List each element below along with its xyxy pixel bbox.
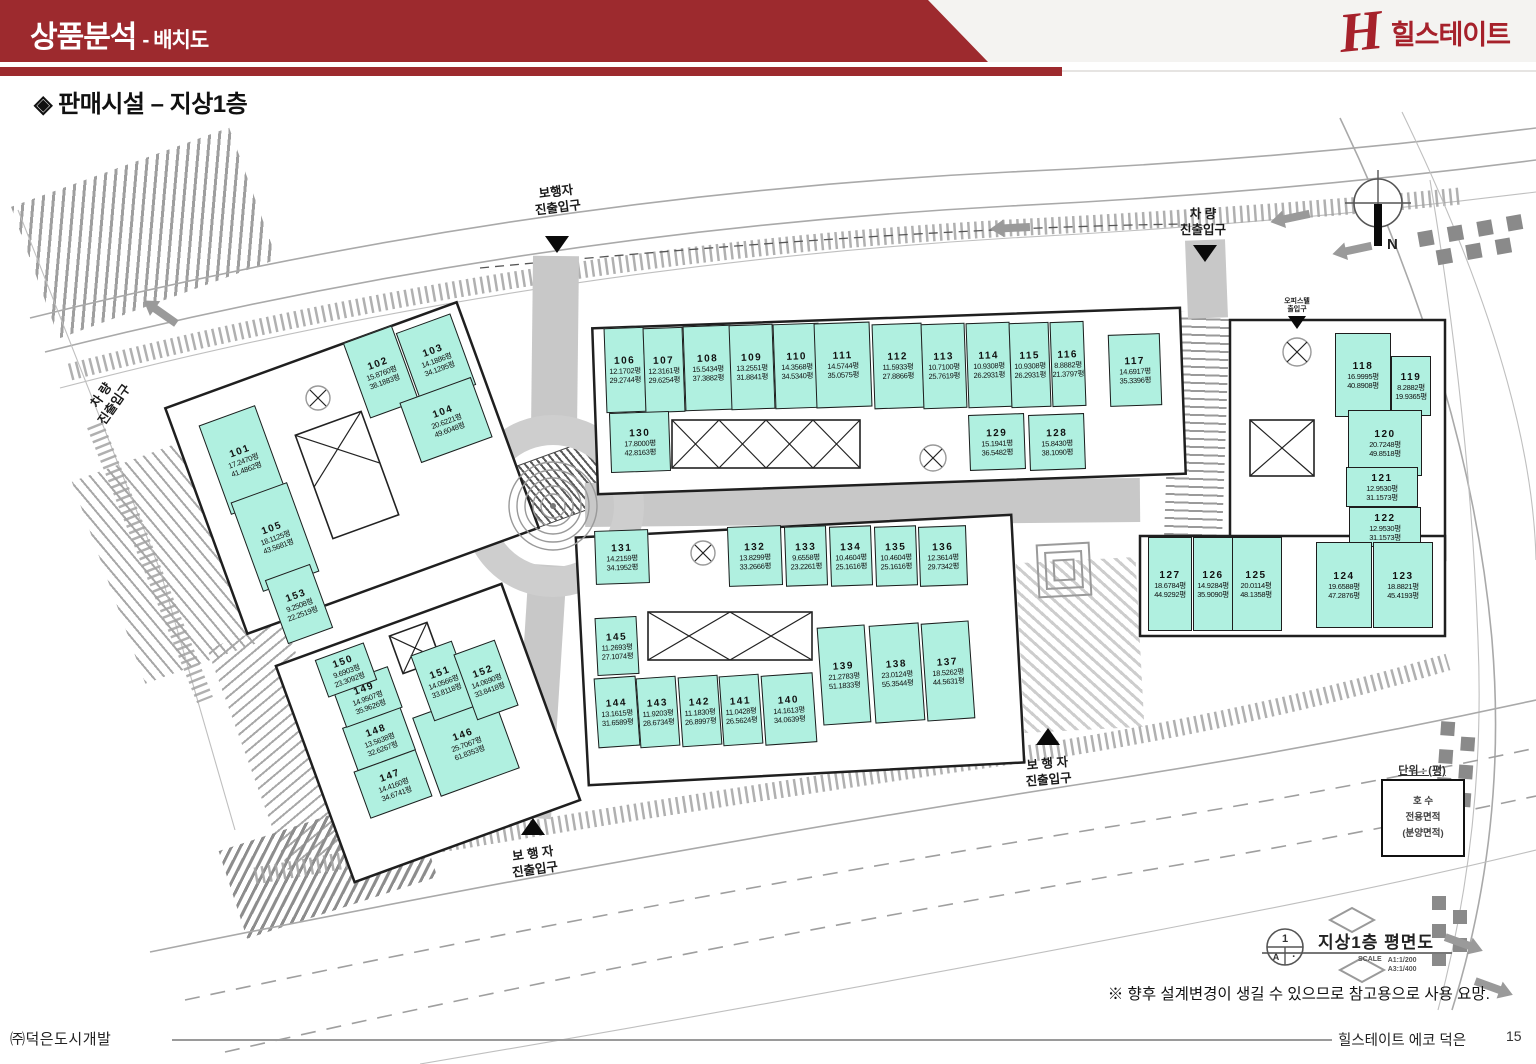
legend-box: 호 수 전용면적 (분양면적) — [1381, 779, 1465, 857]
unit-layer: 101 17.2470평 41.4862평 102 15.8760평 38.18… — [0, 0, 1536, 1064]
unit-room: 133 9.6558평 23.2261평 — [784, 525, 828, 586]
unit-supply-area: 49.8518평 — [1369, 449, 1401, 458]
unit-number: 135 — [885, 541, 907, 553]
unit-room: 124 19.6588평 47.2876평 — [1316, 542, 1372, 628]
unit-number: 111 — [832, 350, 852, 362]
slide: 상품분석- 배치도 H 힐스테이트 ◈ 판매시설 – 지상1층 — [0, 0, 1536, 1064]
unit-number: 130 — [629, 427, 651, 439]
unit-number: 115 — [1019, 350, 1040, 362]
unit-number: 120 — [1374, 429, 1395, 440]
unit-room: 122 12.9530평 31.1573평 — [1349, 507, 1421, 547]
unit-exclusive-area: 20.7248평 — [1369, 440, 1401, 449]
pedestrian-entrance-label-top: 보행자 진출입구 — [532, 181, 582, 219]
unit-room: 118 16.9995평 40.8908평 — [1335, 333, 1391, 417]
unit-supply-area: 37.3882평 — [692, 373, 724, 383]
unit-number: 127 — [1159, 570, 1180, 581]
unit-number: 116 — [1057, 349, 1078, 361]
unit-number: 114 — [978, 350, 999, 362]
unit-supply-area: 45.4193평 — [1387, 591, 1419, 600]
unit-room: 113 10.7100평 25.7619평 — [921, 323, 968, 409]
unit-supply-area: 31.6589평 — [602, 716, 634, 727]
unit-room: 125 20.0114평 48.1358평 — [1230, 537, 1282, 631]
unit-supply-area: 29.2744평 — [609, 375, 641, 385]
unit-supply-area: 42.8163평 — [624, 447, 656, 457]
legend-line: 전용면적 — [1406, 810, 1441, 826]
page-number: 15 — [1506, 1028, 1522, 1044]
unit-number: 118 — [1353, 361, 1374, 372]
plan-scale: SCALE A1:1/200 A3:1/400 — [1358, 956, 1417, 974]
pedestrian-entrance-label-mid: 보 행 자 진출입구 — [1024, 754, 1073, 790]
unit-supply-area: 25.1616평 — [835, 561, 867, 571]
unit-exclusive-area: 16.9995평 — [1347, 372, 1379, 381]
unit-room: 116 8.8882평 21.3797평 — [1050, 321, 1087, 407]
unit-number: 124 — [1333, 571, 1354, 582]
unit-room: 109 13.2551평 31.8841평 — [729, 324, 776, 410]
scale-a3: A3:1/400 — [1388, 965, 1417, 974]
unit-room: 142 11.1830평 26.8997평 — [678, 675, 723, 748]
unit-supply-area: 47.2876평 — [1328, 591, 1360, 600]
disclaimer-note: ※ 향후 설계변경이 생길 수 있으므로 참고용으로 사용 요망. — [1108, 982, 1490, 1004]
pedestrian-entrance-label-bottom: 보 행 자 진출입구 — [509, 843, 559, 882]
unit-room: 138 23.0124평 55.3544평 — [869, 622, 926, 723]
unit-supply-area: 26.2931평 — [1014, 370, 1046, 380]
svg-text:A: A — [1273, 952, 1280, 962]
unit-exclusive-area: 12.9530평 — [1369, 524, 1401, 533]
unit-room: 126 14.9284평 35.9090평 — [1193, 537, 1233, 631]
unit-supply-area: 31.1573평 — [1366, 493, 1398, 502]
unit-number: 113 — [933, 351, 954, 363]
unit-exclusive-area: 20.0114평 — [1240, 581, 1271, 590]
unit-number: 119 — [1401, 372, 1422, 383]
unit-room: 106 12.1702평 29.2744평 — [604, 327, 647, 413]
unit-number: 123 — [1392, 571, 1413, 582]
unit-number: 121 — [1371, 473, 1392, 484]
unit-supply-area: 25.1616평 — [880, 561, 912, 571]
unit-room: 129 15.1941평 36.5482평 — [968, 413, 1026, 471]
footer-rule — [172, 1039, 1332, 1041]
unit-supply-area: 44.5631평 — [933, 675, 965, 686]
unit-room: 128 15.8430평 38.1090평 — [1028, 413, 1086, 471]
unit-supply-area: 34.0639평 — [774, 713, 806, 724]
unit-room: 115 10.9308평 26.2931평 — [1009, 322, 1052, 408]
unit-exclusive-area: 14.9284평 — [1197, 581, 1229, 590]
unit-room: 108 15.5434평 37.3882평 — [683, 325, 734, 412]
unit-room: 119 8.2882평 19.9365평 — [1391, 356, 1431, 416]
plan-symbol-icon: 1 A · — [1265, 927, 1305, 967]
unit-supply-area: 35.0575평 — [827, 370, 859, 380]
unit-number: 125 — [1245, 570, 1266, 581]
unit-supply-area: 34.5340평 — [781, 371, 813, 381]
unit-supply-area: 48.1358평 — [1240, 590, 1272, 599]
unit-room: 114 10.9308평 26.2931평 — [966, 322, 1013, 408]
unit-room: 136 12.3614평 29.7342평 — [918, 525, 968, 587]
unit-number: 109 — [741, 352, 763, 364]
unit-room: 137 18.5262평 44.5631평 — [921, 620, 976, 721]
unit-number: 131 — [611, 542, 633, 554]
unit-number: 107 — [653, 355, 675, 367]
unit-supply-area: 26.5624평 — [726, 714, 758, 725]
unit-room: 134 10.4604평 25.1616평 — [829, 525, 873, 586]
svg-text:·: · — [1292, 951, 1296, 963]
unit-room: 135 10.4604평 25.1616평 — [874, 525, 918, 586]
unit-room: 145 11.2693평 27.1074평 — [595, 616, 640, 676]
unit-number: 132 — [744, 541, 766, 553]
unit-supply-area: 26.8997평 — [685, 715, 717, 726]
unit-room: 144 13.1615평 31.6589평 — [594, 676, 641, 749]
legend-line: 호 수 — [1413, 794, 1433, 810]
unit-number: 112 — [887, 351, 908, 363]
unit-room: 140 14.1613평 34.0639평 — [761, 672, 818, 745]
unit-supply-area: 29.7342평 — [927, 561, 959, 571]
unit-number: 133 — [795, 541, 817, 553]
unit-room: 143 11.9203평 28.6734평 — [636, 676, 681, 749]
area-unit-note: 단위 : (평) — [1374, 762, 1470, 778]
unit-number: 128 — [1046, 427, 1068, 439]
unit-number: 136 — [932, 541, 954, 553]
unit-supply-area: 27.8866평 — [882, 371, 914, 381]
unit-room: 111 14.5744평 35.0575평 — [814, 322, 873, 409]
north-label: N — [1387, 236, 1398, 253]
unit-supply-area: 31.8841평 — [736, 372, 768, 382]
unit-exclusive-area: 12.9530평 — [1366, 484, 1398, 493]
unit-supply-area: 33.2666평 — [739, 561, 771, 571]
scale-a1: A1:1/200 — [1388, 956, 1417, 965]
footer-project: 힐스테이트 에코 덕은 — [1338, 1029, 1466, 1050]
unit-number: 110 — [786, 351, 807, 363]
unit-number: 129 — [986, 427, 1008, 439]
svg-text:1: 1 — [1282, 933, 1288, 945]
unit-exclusive-area: 19.6588평 — [1328, 582, 1360, 591]
unit-number: 108 — [697, 353, 719, 365]
unit-number: 106 — [614, 355, 636, 367]
unit-supply-area: 23.2261평 — [790, 561, 822, 571]
scale-label: SCALE — [1358, 956, 1382, 974]
unit-supply-area: 34.1952평 — [606, 562, 638, 572]
unit-room: 117 14.6917평 35.3396평 — [1108, 333, 1162, 407]
unit-room: 131 14.2159평 34.1952평 — [594, 529, 650, 585]
unit-exclusive-area: 8.2882평 — [1397, 383, 1425, 392]
unit-supply-area: 21.3797평 — [1052, 369, 1084, 379]
unit-supply-area: 25.7619평 — [928, 371, 960, 381]
unit-supply-area: 27.1074평 — [601, 651, 633, 662]
plan-title: 지상1층 평면도 — [1318, 928, 1434, 953]
vehicle-entrance-label-top: 차 량 진출입구 — [1180, 206, 1226, 239]
unit-supply-area: 19.9365평 — [1395, 392, 1427, 401]
unit-supply-area: 29.6254평 — [648, 375, 680, 385]
unit-room: 153 9.2508평 22.2519평 — [265, 564, 333, 644]
unit-room: 107 12.3161평 29.6254평 — [643, 327, 686, 413]
unit-supply-area: 35.3396평 — [1119, 375, 1151, 385]
unit-room: 130 17.8000평 42.8163평 — [609, 411, 671, 473]
unit-room: 112 11.5933평 27.8866평 — [872, 323, 925, 410]
site-plan: 101 17.2470평 41.4862평 102 15.8760평 38.18… — [0, 0, 1536, 1064]
unit-number: 122 — [1374, 513, 1395, 524]
unit-room: 121 12.9530평 31.1573평 — [1346, 467, 1418, 507]
unit-supply-area: 26.2931평 — [973, 370, 1005, 380]
unit-room: 132 13.8299평 33.2666평 — [727, 525, 783, 587]
officetel-entrance-label: 오피스텔 출입구 — [1284, 298, 1310, 314]
unit-room: 127 18.6784평 44.9292평 — [1148, 537, 1192, 631]
unit-supply-area: 38.1090평 — [1041, 447, 1073, 457]
unit-supply-area: 36.5482평 — [981, 447, 1013, 457]
legend-line: (분양면적) — [1402, 826, 1443, 842]
unit-supply-area: 40.8908평 — [1347, 381, 1379, 390]
unit-supply-area: 55.3544평 — [882, 677, 914, 688]
unit-exclusive-area: 18.8821평 — [1387, 582, 1419, 591]
footer-company: ㈜덕은도시개발 — [10, 1028, 111, 1049]
unit-supply-area: 35.9090평 — [1197, 590, 1229, 599]
unit-exclusive-area: 18.6784평 — [1154, 581, 1186, 590]
unit-number: 117 — [1124, 355, 1145, 367]
unit-number: 134 — [840, 541, 862, 553]
unit-room: 141 11.0428평 26.5624평 — [719, 674, 764, 747]
unit-supply-area: 31.1573평 — [1369, 533, 1401, 542]
unit-room: 123 18.8821평 45.4193평 — [1373, 542, 1433, 628]
unit-number: 126 — [1202, 570, 1223, 581]
unit-room: 139 21.2783평 51.1833평 — [817, 624, 872, 725]
unit-supply-area: 44.9292평 — [1154, 590, 1186, 599]
unit-supply-area: 28.6734평 — [643, 716, 675, 727]
unit-supply-area: 51.1833평 — [829, 679, 861, 690]
